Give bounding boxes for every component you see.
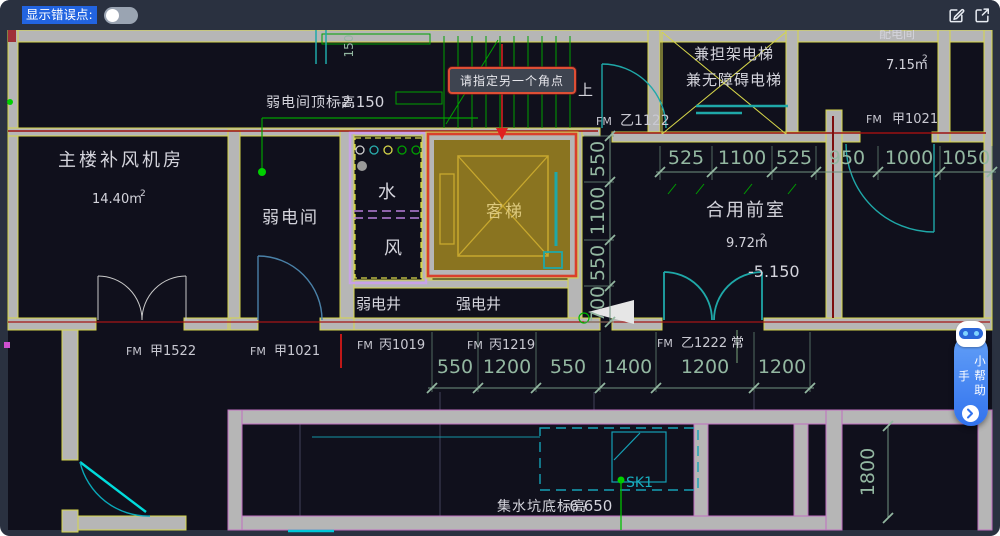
svg-text:FM: FM — [866, 113, 882, 126]
svg-text:1100: 1100 — [587, 187, 609, 235]
toolbar: 显示错误点: — [0, 0, 1000, 30]
magenta-marker — [4, 342, 10, 348]
svg-text:1100: 1100 — [718, 147, 766, 169]
svg-text:2: 2 — [760, 233, 766, 243]
svg-text:550: 550 — [587, 141, 609, 177]
dim-150: 150 — [342, 35, 356, 58]
svg-text:1200: 1200 — [483, 356, 531, 378]
svg-text:甲1021: 甲1021 — [274, 344, 320, 359]
svg-text:合用前室: 合用前室 — [706, 200, 786, 221]
open-in-new-icon[interactable] — [972, 5, 992, 25]
svg-text:乙1222: 乙1222 — [681, 336, 727, 351]
svg-text:FM: FM — [126, 345, 142, 358]
svg-text:丙1019: 丙1019 — [379, 338, 425, 353]
svg-text:兼担架电梯: 兼担架电梯 — [694, 45, 774, 63]
toggle-knob — [106, 9, 119, 22]
svg-text:FM: FM — [657, 337, 673, 350]
svg-text:兼无障碍电梯: 兼无障碍电梯 — [686, 71, 782, 89]
edit-icon[interactable] — [946, 5, 966, 25]
svg-text:常: 常 — [731, 336, 744, 351]
svg-text:2: 2 — [140, 189, 146, 199]
svg-text:风: 风 — [384, 238, 402, 259]
svg-text:-2.150: -2.150 — [336, 93, 384, 111]
command-tooltip: 请指定另一个角点 — [448, 67, 576, 94]
svg-text:FM: FM — [250, 345, 266, 358]
svg-text:1400: 1400 — [604, 356, 652, 378]
robot-icon — [956, 321, 986, 347]
error-points-label: 显示错误点: — [22, 6, 97, 24]
svg-text:甲1021: 甲1021 — [892, 112, 938, 127]
svg-text:525: 525 — [668, 147, 704, 169]
svg-text:主楼补风机房: 主楼补风机房 — [58, 150, 184, 171]
wall-red-segment — [8, 30, 16, 42]
svg-text:FM: FM — [467, 339, 483, 352]
dimension-left-vertical: 550 1100 550 700 — [584, 131, 615, 327]
svg-text:1050: 1050 — [942, 147, 990, 169]
svg-text:14.40m: 14.40m — [92, 192, 142, 207]
svg-text:客梯: 客梯 — [486, 202, 524, 222]
svg-text:550: 550 — [437, 356, 473, 378]
svg-text:FM: FM — [596, 115, 612, 128]
svg-text:乙1122: 乙1122 — [620, 113, 670, 129]
svg-text:弱电井: 弱电井 — [356, 295, 401, 313]
svg-text:-5.150: -5.150 — [748, 262, 800, 281]
svg-text:弱电间: 弱电间 — [262, 208, 319, 228]
svg-text:丙1219: 丙1219 — [489, 338, 535, 353]
svg-text:SK1: SK1 — [626, 475, 653, 491]
svg-text:700: 700 — [587, 286, 609, 322]
chevron-right-icon — [966, 408, 975, 419]
assistant-widget[interactable]: 小帮助手 — [954, 334, 988, 426]
assistant-expand-button[interactable] — [962, 405, 979, 422]
error-points-toggle[interactable] — [104, 7, 138, 24]
svg-text:525: 525 — [776, 147, 812, 169]
svg-text:强电井: 强电井 — [456, 295, 501, 313]
svg-text:上: 上 — [578, 81, 593, 99]
svg-text:950: 950 — [829, 147, 865, 169]
svg-text:1200: 1200 — [681, 356, 729, 378]
svg-text:FM: FM — [357, 339, 373, 352]
svg-text:甲1522: 甲1522 — [150, 344, 196, 359]
svg-text:1000: 1000 — [885, 147, 933, 169]
svg-text:550: 550 — [587, 245, 609, 281]
assistant-label: 小帮助手 — [954, 351, 988, 403]
svg-text:550: 550 — [550, 356, 586, 378]
svg-text:-6.650: -6.650 — [564, 497, 612, 515]
svg-text:1200: 1200 — [758, 356, 806, 378]
svg-text:1800: 1800 — [857, 448, 879, 496]
svg-text:水: 水 — [378, 182, 396, 203]
svg-text:2: 2 — [922, 54, 928, 64]
cad-viewer-window: 525 1100 525 950 1000 1050 550 1200 550 … — [0, 0, 1000, 536]
